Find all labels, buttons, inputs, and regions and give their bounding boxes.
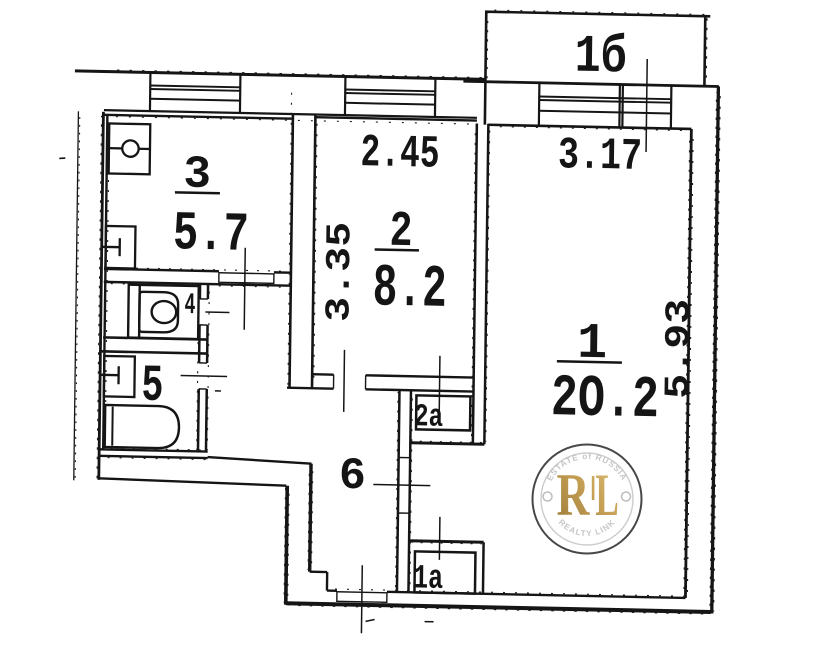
svg-text:2а: 2а bbox=[414, 398, 443, 436]
svg-text:4: 4 bbox=[184, 289, 195, 323]
svg-text:3.35: 3.35 bbox=[319, 221, 360, 322]
svg-text:2: 2 bbox=[389, 204, 413, 261]
svg-text:1а: 1а bbox=[413, 560, 443, 599]
svg-text:R: R bbox=[557, 462, 590, 528]
svg-text:5.7: 5.7 bbox=[173, 202, 250, 267]
svg-text:L: L bbox=[595, 462, 619, 528]
svg-text:8.2: 8.2 bbox=[372, 255, 447, 325]
svg-text:1б: 1б bbox=[574, 27, 627, 88]
svg-text:2O.2: 2O.2 bbox=[551, 365, 660, 434]
svg-text:3.17: 3.17 bbox=[558, 130, 643, 183]
svg-text:5.93: 5.93 bbox=[658, 298, 699, 399]
svg-text:2.45: 2.45 bbox=[360, 127, 440, 181]
svg-text:6: 6 bbox=[339, 451, 367, 503]
svg-text:1: 1 bbox=[577, 316, 608, 374]
svg-text:5: 5 bbox=[141, 357, 164, 416]
